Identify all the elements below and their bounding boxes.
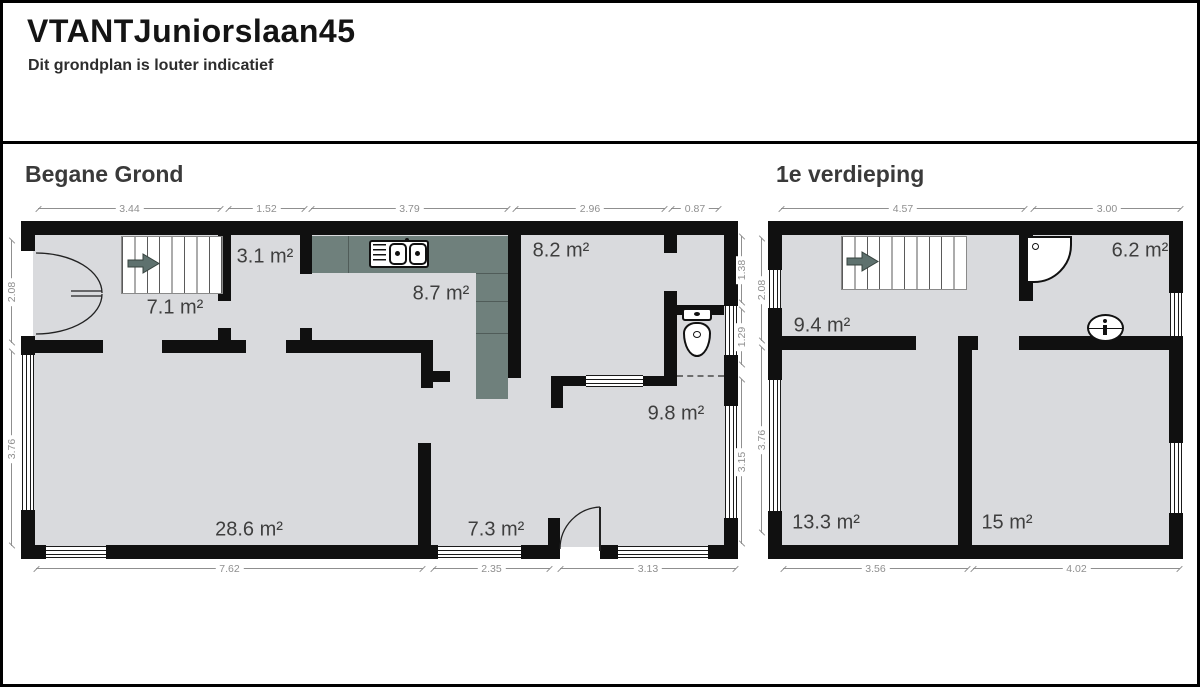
plan-heading-ground: Begane Grond [25,161,183,188]
window [769,380,781,511]
wall [1169,513,1183,545]
counter-seam [476,273,508,274]
dimension-horizontal: 3.13 [560,562,736,575]
wall [21,545,46,559]
header-divider [3,141,1197,144]
kitchen-counter [476,236,508,399]
wall [1169,235,1183,293]
room-label-keuken: 8.7 m² [413,283,470,306]
faucet-dot [1103,319,1107,323]
room-label-hal: 7.1 m² [147,297,204,320]
dimension-vertical: 3.15 [735,379,748,544]
dimension-value: 2.08 [6,277,18,305]
window [586,375,643,387]
dimension-horizontal: 7.62 [36,562,423,575]
dimension-horizontal: 1.52 [228,202,305,215]
dimension-horizontal: 3.56 [783,562,968,575]
dimension-value: 3.76 [756,426,768,454]
dimension-value: 1.52 [252,203,280,215]
wall [958,350,972,545]
dimension-vertical: 1.38 [735,236,748,303]
wall [300,328,312,340]
room-label-slaapkamer-1: 13.3 m² [792,512,860,535]
drain-dot [415,251,420,256]
window [46,546,106,558]
room-label-overloop: 9.4 m² [794,315,851,338]
wall [218,328,231,340]
dimension-value: 3.79 [395,203,423,215]
wall [433,371,450,382]
first-floor-area [780,233,1171,547]
toilet-button [694,312,700,316]
dimension-value: 3.15 [736,447,748,475]
stair-direction-arrow-icon [128,254,160,273]
dimension-horizontal: 2.96 [515,202,665,215]
dimension-vertical: 3.76 [755,347,768,533]
basin-edge-line [1089,328,1122,329]
dimension-value: 3.00 [1093,203,1121,215]
wall [421,340,433,388]
dimension-value: 3.44 [115,203,143,215]
wall [106,545,438,559]
dimension-horizontal: 4.57 [781,202,1025,215]
sink-drainer-icon [373,244,386,264]
wall [508,235,521,378]
toilet-drain [693,331,701,338]
room-label-kamer-rechtsonder: 9.8 m² [648,403,705,426]
dimension-value: 0.87 [681,203,709,215]
dimension-value: 7.62 [215,563,243,575]
dimension-vertical: 1.29 [735,309,748,365]
wall [708,545,738,559]
wall [21,221,738,235]
page-title: VTANTJuniorslaan45 [27,13,355,50]
wall [782,336,916,350]
wall [768,545,1183,559]
dimension-value: 3.13 [634,563,662,575]
dimension-horizontal: 4.02 [973,562,1180,575]
dimension-value: 2.08 [756,275,768,303]
dimension-value: 2.35 [477,563,505,575]
room-label-woonkamer: 28.6 m² [215,519,283,542]
wall [664,291,677,380]
window [22,355,34,510]
dimension-horizontal: 0.87 [671,202,719,215]
dimension-value: 1.29 [736,323,748,351]
wall [664,235,677,253]
window [1170,293,1182,336]
shower-drain [1032,243,1039,250]
wall [768,221,1183,235]
counter-seam [348,236,349,273]
dimension-horizontal: 3.79 [311,202,508,215]
window [769,270,781,308]
wall [768,511,782,545]
dimension-value: 3.76 [6,434,18,462]
dimension-value: 1.38 [736,255,748,283]
wall [521,545,560,559]
window [1170,443,1182,513]
dimension-horizontal: 3.00 [1033,202,1181,215]
wall [958,336,978,350]
dimension-value: 2.96 [576,203,604,215]
wall [162,340,246,353]
room-label-kamer-midden: 7.3 m² [468,519,525,542]
wall [418,443,431,545]
dimension-value: 4.57 [889,203,917,215]
open-edge-dashed-line [677,375,724,377]
wall [21,510,35,545]
dimension-horizontal: 2.35 [433,562,550,575]
dimension-vertical: 2.08 [5,240,18,343]
room-label-slaapkamer-2: 15 m² [981,512,1032,535]
counter-seam [476,301,508,302]
counter-seam [476,333,508,334]
stair-direction-arrow-icon [847,252,879,271]
dimension-value: 4.02 [1062,563,1090,575]
wall [21,235,35,251]
page-subtitle: Dit grondplan is louter indicatief [28,57,273,75]
wall [768,235,782,270]
faucet-spout [1103,325,1107,335]
wall [768,308,782,380]
room-label-trapkast: 3.1 m² [237,246,294,269]
drain-dot [395,251,400,256]
wall [1169,336,1183,443]
room-label-badkamer: 6.2 m² [1112,240,1169,263]
wall [286,340,433,353]
dimension-horizontal: 3.44 [38,202,221,215]
wall [300,235,312,274]
faucet-dot [405,238,409,242]
window [618,546,708,558]
room-label-kamer-rechtsboven: 8.2 m² [533,240,590,263]
dimension-vertical: 3.76 [5,351,18,546]
wall [21,340,103,353]
window [438,546,521,558]
dimension-value: 3.56 [861,563,889,575]
dimension-vertical: 2.08 [755,238,768,341]
plan-heading-first: 1e verdieping [776,161,924,188]
exterior-door [556,501,604,553]
floorplan-page: VTANTJuniorslaan45 Dit grondplan is lout… [0,0,1200,687]
entry-double-door [35,251,105,336]
